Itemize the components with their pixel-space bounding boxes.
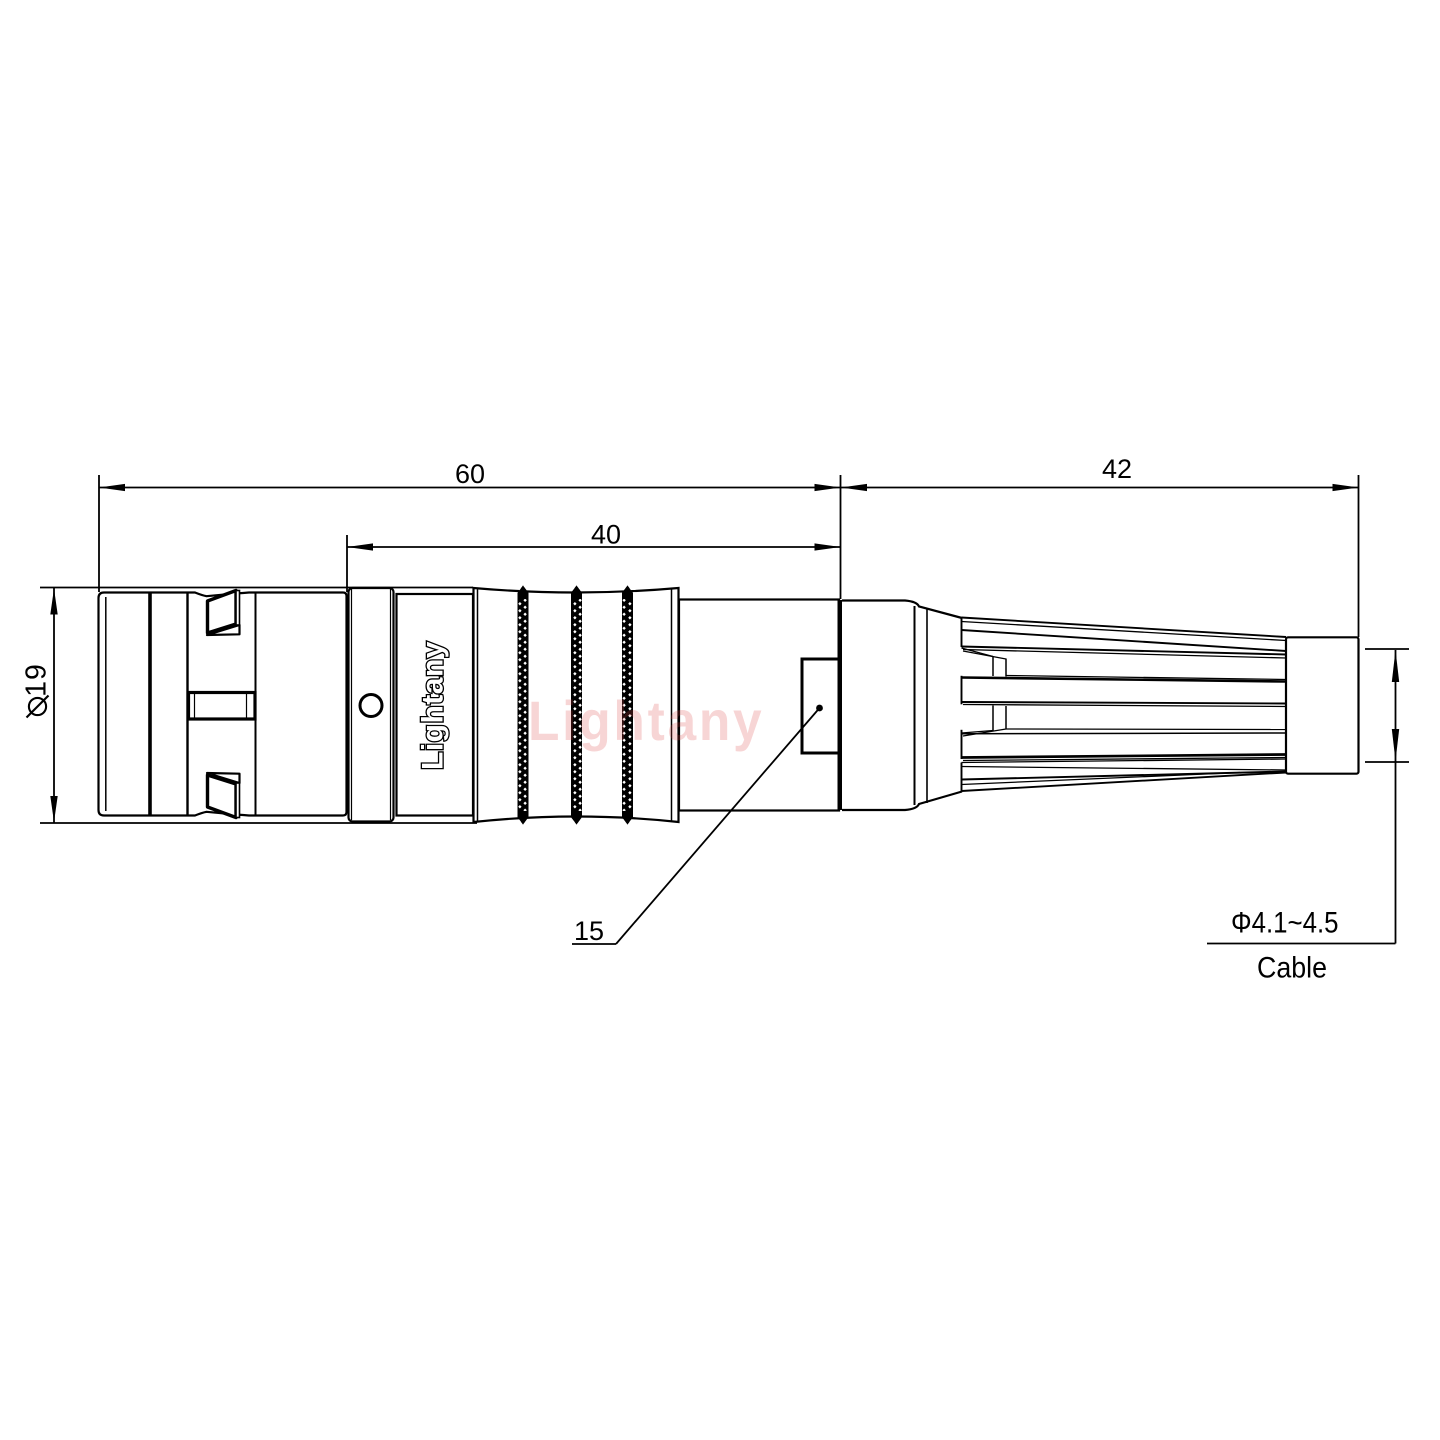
- svg-text:40: 40: [591, 520, 621, 550]
- svg-text:Φ4.1~4.5: Φ4.1~4.5: [1231, 907, 1339, 940]
- svg-text:15: 15: [574, 916, 604, 946]
- svg-text:Cable: Cable: [1257, 952, 1327, 985]
- svg-text:42: 42: [1102, 454, 1132, 484]
- svg-text:19: 19: [21, 663, 53, 697]
- svg-text:Lightany: Lightany: [528, 690, 762, 752]
- svg-text:Lightany: Lightany: [416, 641, 449, 770]
- svg-text:60: 60: [455, 459, 485, 489]
